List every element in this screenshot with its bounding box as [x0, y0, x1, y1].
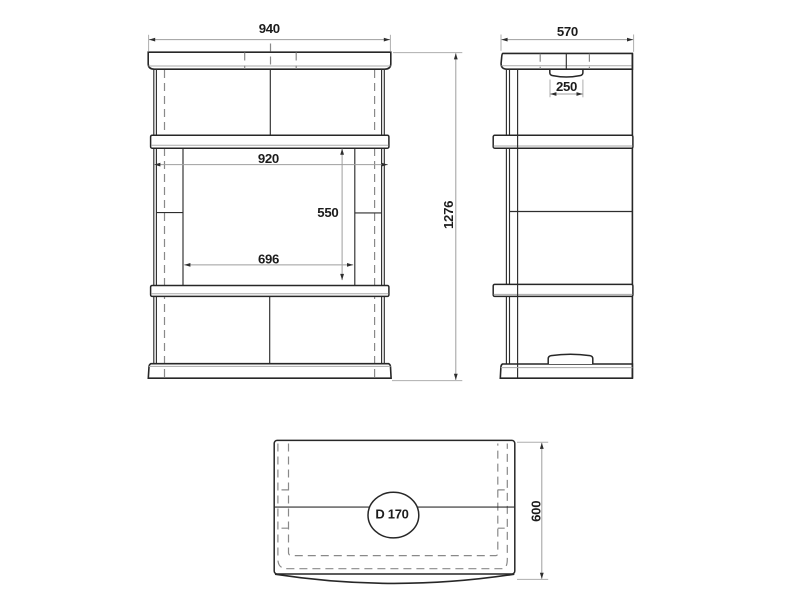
svg-text:570: 570 — [557, 24, 578, 39]
svg-text:940: 940 — [259, 21, 280, 36]
svg-text:1276: 1276 — [441, 201, 456, 229]
svg-text:696: 696 — [258, 252, 279, 267]
svg-text:D 170: D 170 — [375, 506, 408, 521]
svg-text:600: 600 — [528, 501, 543, 522]
svg-text:920: 920 — [258, 151, 279, 166]
svg-text:250: 250 — [556, 79, 577, 94]
svg-text:550: 550 — [317, 205, 338, 220]
